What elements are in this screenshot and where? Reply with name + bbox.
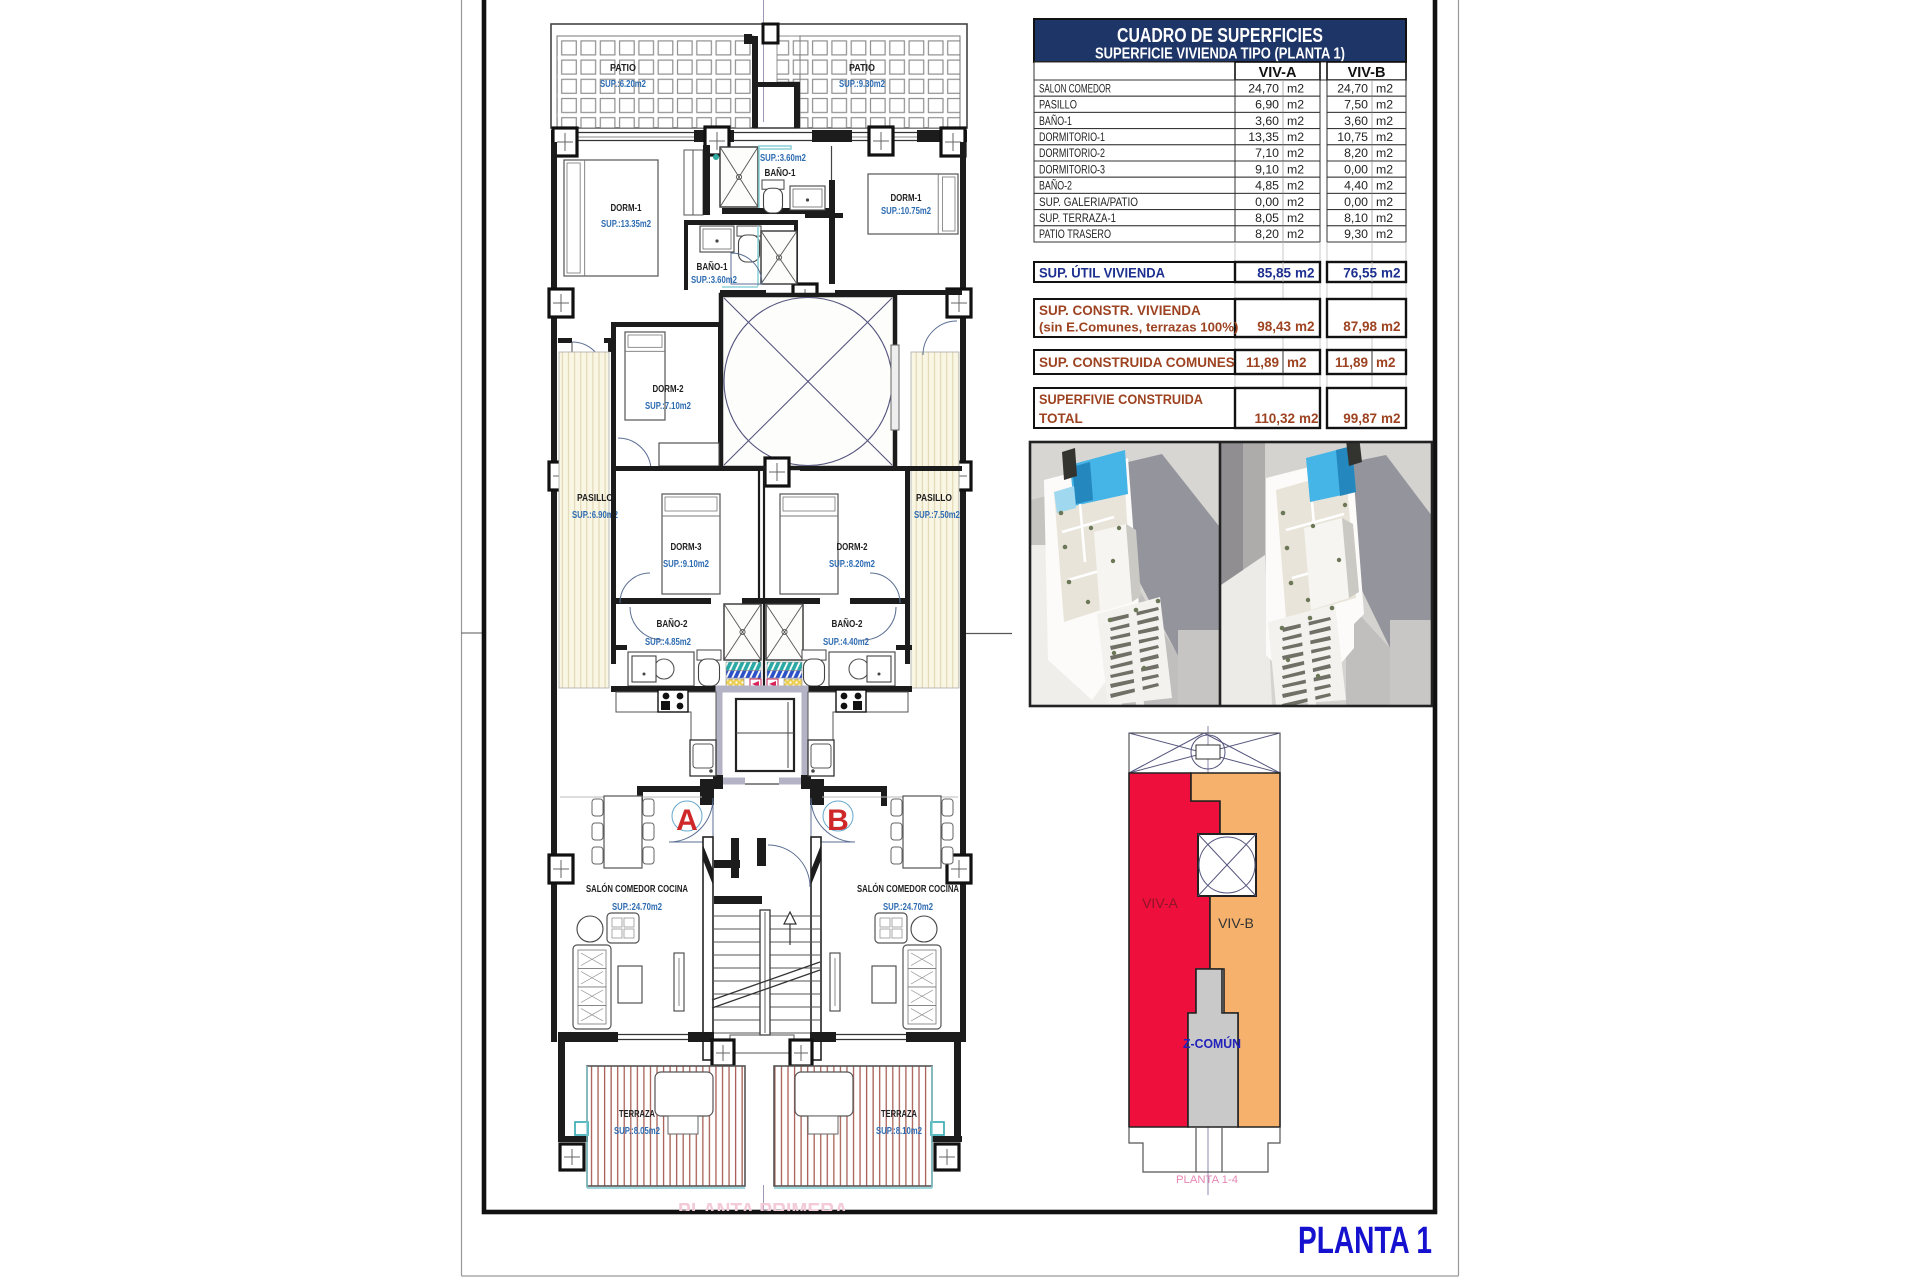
svg-text:m2: m2	[1287, 162, 1304, 176]
svg-text:SUP.:9.10m2: SUP.:9.10m2	[663, 559, 709, 570]
svg-text:PASILLO: PASILLO	[916, 493, 952, 504]
svg-text:BAÑO-2: BAÑO-2	[832, 617, 863, 630]
svg-text:SUPERFIVIE CONSTRUIDA: SUPERFIVIE CONSTRUIDA	[1039, 392, 1203, 407]
svg-text:VIV-A: VIV-A	[1142, 895, 1178, 911]
svg-text:76,55: 76,55	[1343, 266, 1377, 281]
svg-text:m2: m2	[1376, 195, 1393, 209]
svg-text:SUP.:4.40m2: SUP.:4.40m2	[823, 637, 869, 648]
svg-text:24,70: 24,70	[1337, 81, 1368, 95]
svg-text:BAÑO-1: BAÑO-1	[765, 166, 796, 179]
svg-text:SALÓN COMEDOR COCINA: SALÓN COMEDOR COCINA	[857, 882, 959, 895]
svg-text:DORM-3: DORM-3	[671, 542, 702, 553]
svg-text:m2: m2	[1376, 179, 1393, 193]
svg-text:9,30: 9,30	[1344, 227, 1368, 241]
svg-text:PATIO: PATIO	[610, 63, 636, 74]
svg-text:0,00: 0,00	[1344, 162, 1368, 176]
svg-text:CUADRO DE SUPERFICIES: CUADRO DE SUPERFICIES	[1117, 24, 1323, 47]
svg-text:m2: m2	[1376, 98, 1393, 112]
svg-text:3,60: 3,60	[1344, 114, 1368, 128]
svg-text:0,00: 0,00	[1344, 195, 1368, 209]
svg-text:PASILLO: PASILLO	[577, 493, 613, 504]
svg-text:13,35: 13,35	[1248, 130, 1279, 144]
svg-text:m2: m2	[1295, 319, 1315, 334]
svg-text:SUP.:8.10m2: SUP.:8.10m2	[876, 1126, 922, 1137]
svg-text:SUP. GALERIA/PATIO: SUP. GALERIA/PATIO	[1039, 195, 1138, 209]
svg-text:6,90: 6,90	[1255, 98, 1279, 112]
svg-text:m2: m2	[1287, 98, 1304, 112]
svg-text:VIV-A: VIV-A	[1259, 65, 1297, 81]
svg-text:TERRAZA: TERRAZA	[881, 1109, 917, 1120]
svg-text:4,40: 4,40	[1344, 179, 1368, 193]
svg-text:DORM-1: DORM-1	[891, 193, 922, 204]
svg-text:85,85: 85,85	[1257, 266, 1291, 281]
svg-text:m2: m2	[1287, 146, 1304, 160]
svg-text:8,20: 8,20	[1255, 227, 1279, 241]
svg-text:DORMITORIO-1: DORMITORIO-1	[1039, 130, 1105, 144]
svg-text:SUP.:10.75m2: SUP.:10.75m2	[881, 206, 931, 217]
svg-text:m2: m2	[1381, 411, 1401, 426]
svg-text:m2: m2	[1295, 266, 1315, 281]
svg-text:m2: m2	[1376, 355, 1396, 370]
svg-text:SUP.:24.70m2: SUP.:24.70m2	[883, 902, 933, 913]
svg-text:SUP.:13.35m2: SUP.:13.35m2	[601, 219, 651, 230]
svg-text:9,10: 9,10	[1255, 162, 1279, 176]
svg-text:24,70: 24,70	[1248, 81, 1279, 95]
svg-text:m2: m2	[1376, 162, 1393, 176]
svg-text:PLANTA 1: PLANTA 1	[1298, 1220, 1432, 1262]
svg-text:0,00: 0,00	[1255, 195, 1279, 209]
svg-text:m2: m2	[1376, 146, 1393, 160]
svg-text:PATIO TRASERO: PATIO TRASERO	[1039, 227, 1111, 241]
svg-text:m2: m2	[1376, 211, 1393, 225]
svg-text:m2: m2	[1376, 114, 1393, 128]
svg-text:SUP.:9.30m2: SUP.:9.30m2	[839, 79, 885, 90]
svg-text:SUP. TERRAZA-1: SUP. TERRAZA-1	[1039, 211, 1116, 225]
svg-text:TOTAL: TOTAL	[1039, 411, 1083, 426]
svg-text:98,43: 98,43	[1257, 319, 1291, 334]
svg-text:m2: m2	[1287, 195, 1304, 209]
svg-text:m2: m2	[1381, 319, 1401, 334]
svg-text:10,75: 10,75	[1337, 130, 1368, 144]
svg-text:11,89: 11,89	[1246, 355, 1279, 370]
svg-text:VIV-B: VIV-B	[1218, 915, 1254, 931]
svg-text:8,10: 8,10	[1344, 211, 1368, 225]
svg-text:TERRAZA: TERRAZA	[619, 1109, 655, 1120]
svg-text:VIV-B: VIV-B	[1348, 65, 1386, 81]
svg-text:PLANTA 1-4: PLANTA 1-4	[1176, 1174, 1238, 1186]
svg-text:SUP.:8.20m2: SUP.:8.20m2	[829, 559, 875, 570]
svg-text:SUP.:7.50m2: SUP.:7.50m2	[914, 510, 960, 521]
svg-text:m2: m2	[1381, 266, 1401, 281]
svg-text:SUP.:6.20m2: SUP.:6.20m2	[600, 79, 646, 90]
svg-text:DORMITORIO-2: DORMITORIO-2	[1039, 146, 1105, 160]
svg-text:SUP.:7.10m2: SUP.:7.10m2	[645, 401, 691, 412]
svg-text:SALON COMEDOR: SALON COMEDOR	[1039, 81, 1111, 95]
svg-text:B: B	[827, 804, 849, 837]
svg-text:99,87: 99,87	[1343, 411, 1377, 426]
svg-text:SUP. CONSTR. VIVIENDA: SUP. CONSTR. VIVIENDA	[1039, 303, 1201, 318]
svg-text:PATIO: PATIO	[849, 63, 875, 74]
svg-text:11,89: 11,89	[1335, 355, 1368, 370]
svg-text:DORM-2: DORM-2	[653, 384, 684, 395]
svg-text:BAÑO-2: BAÑO-2	[1039, 179, 1072, 193]
svg-text:DORMITORIO-3: DORMITORIO-3	[1039, 162, 1105, 176]
svg-text:(sin E.Comunes, terrazas 100%): (sin E.Comunes, terrazas 100%)	[1039, 320, 1238, 335]
svg-text:SALÓN COMEDOR COCINA: SALÓN COMEDOR COCINA	[586, 882, 688, 895]
svg-text:110,32: 110,32	[1254, 411, 1295, 426]
svg-text:8,20: 8,20	[1344, 146, 1368, 160]
svg-text:BAÑO-2: BAÑO-2	[657, 617, 688, 630]
svg-text:m2: m2	[1287, 81, 1304, 95]
svg-text:m2: m2	[1376, 81, 1393, 95]
svg-text:SUP.:8.05m2: SUP.:8.05m2	[614, 1126, 660, 1137]
svg-text:m2: m2	[1287, 130, 1304, 144]
svg-text:PASILLO: PASILLO	[1039, 98, 1077, 112]
svg-text:m2: m2	[1376, 227, 1393, 241]
svg-text:m2: m2	[1287, 114, 1304, 128]
svg-text:3,60: 3,60	[1255, 114, 1279, 128]
svg-text:87,98: 87,98	[1343, 319, 1377, 334]
svg-text:BAÑO-1: BAÑO-1	[697, 260, 728, 273]
svg-text:8,05: 8,05	[1255, 211, 1279, 225]
svg-text:m2: m2	[1299, 411, 1319, 426]
svg-text:DORM-1: DORM-1	[611, 203, 642, 214]
svg-text:m2: m2	[1287, 211, 1304, 225]
svg-text:SUP.:24.70m2: SUP.:24.70m2	[612, 902, 662, 913]
svg-text:A: A	[676, 804, 698, 837]
svg-text:4,85: 4,85	[1255, 179, 1279, 193]
svg-text:DORM-2: DORM-2	[837, 542, 868, 553]
svg-text:m2: m2	[1376, 130, 1393, 144]
svg-text:m2: m2	[1287, 179, 1304, 193]
svg-text:m2: m2	[1287, 227, 1304, 241]
svg-text:SUP.:3.60m2: SUP.:3.60m2	[691, 275, 737, 286]
svg-text:SUP. ÚTIL VIVIENDA: SUP. ÚTIL VIVIENDA	[1039, 266, 1165, 281]
svg-text:m2: m2	[1287, 355, 1307, 370]
svg-text:7,50: 7,50	[1344, 98, 1368, 112]
svg-text:SUPERFICIE VIVIENDA TIPO (PLA: SUPERFICIE VIVIENDA TIPO (PLANTA 1)	[1095, 46, 1345, 63]
svg-text:SUP. CONSTRUIDA COMUNES: SUP. CONSTRUIDA COMUNES	[1039, 355, 1235, 370]
svg-text:BAÑO-1: BAÑO-1	[1039, 114, 1072, 128]
svg-text:SUP.:3.60m2: SUP.:3.60m2	[760, 153, 806, 164]
svg-text:Z-COMÚN: Z-COMÚN	[1183, 1036, 1241, 1051]
svg-text:7,10: 7,10	[1255, 146, 1279, 160]
